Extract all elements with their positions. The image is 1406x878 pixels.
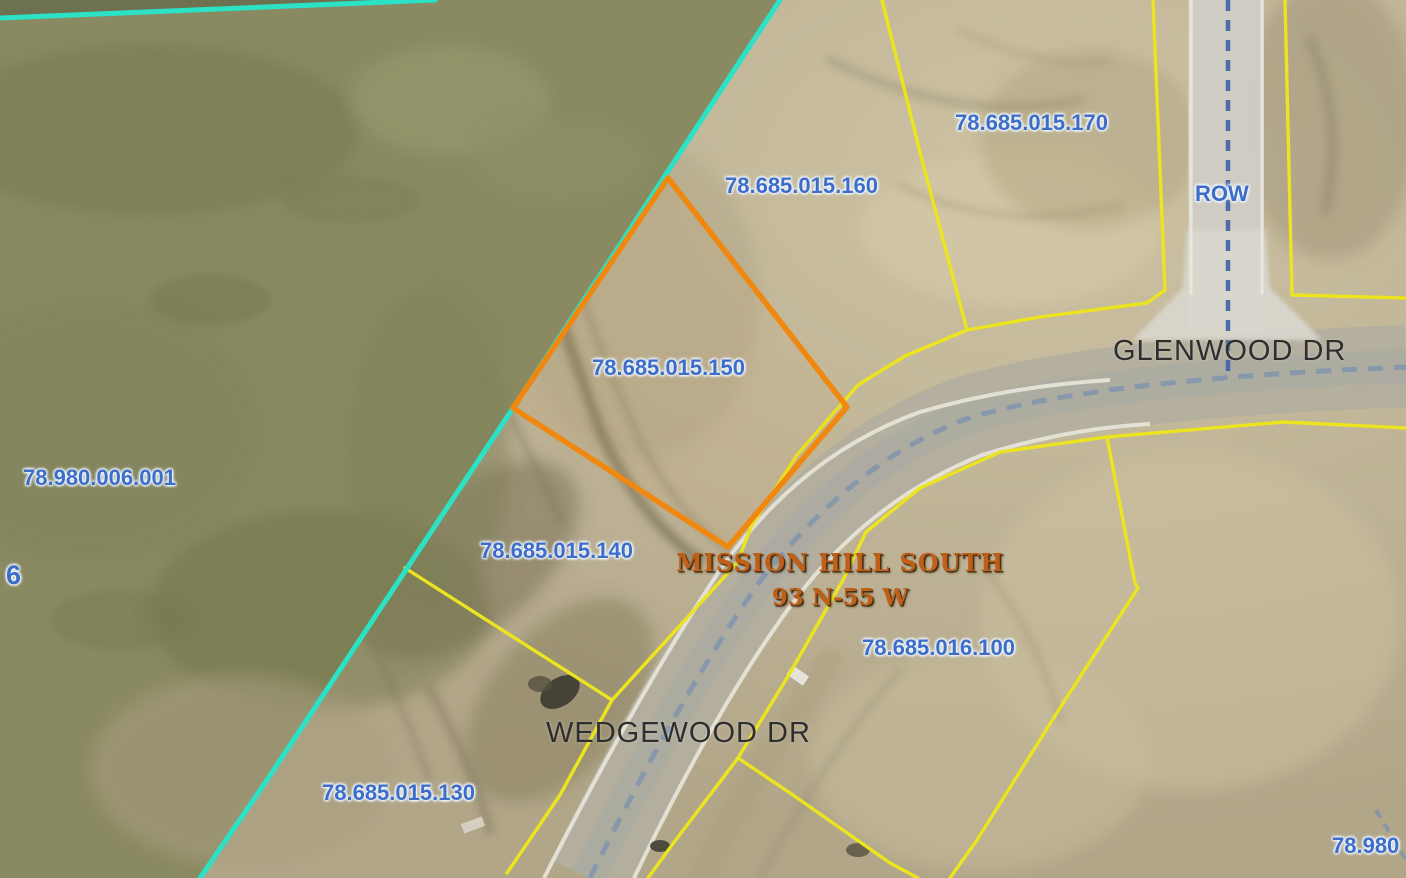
parcel-label-015-160: 78.685.015.160 (725, 175, 878, 197)
plat-label: MISSION HILL SOUTH 93 N-55 W (650, 548, 1030, 611)
parcel-label-015-130: 78.685.015.130 (322, 782, 475, 804)
parcel-label-015-140: 78.685.015.140 (480, 540, 633, 562)
parcel-label-015-170: 78.685.015.170 (955, 112, 1108, 134)
plat-township-label: 93 N-55 W (650, 584, 1030, 611)
road-label-glenwood: GLENWOOD DR (1113, 337, 1346, 366)
parcel-label-016-100: 78.685.016.100 (862, 637, 1015, 659)
parcel-label-015-150: 78.685.015.150 (592, 357, 745, 379)
parcel-label-78-980: 78.980 (1332, 835, 1399, 857)
map-viewport[interactable]: 78.685.015.170 78.685.015.160 ROW 78.685… (0, 0, 1406, 878)
plat-name-label: MISSION HILL SOUTH (650, 548, 1030, 577)
road-label-wedgewood: WEDGEWOOD DR (546, 719, 811, 748)
section-number-label: 6 (6, 562, 21, 589)
parcel-label-006-001: 78.980.006.001 (23, 467, 176, 489)
row-label: ROW (1195, 183, 1249, 205)
